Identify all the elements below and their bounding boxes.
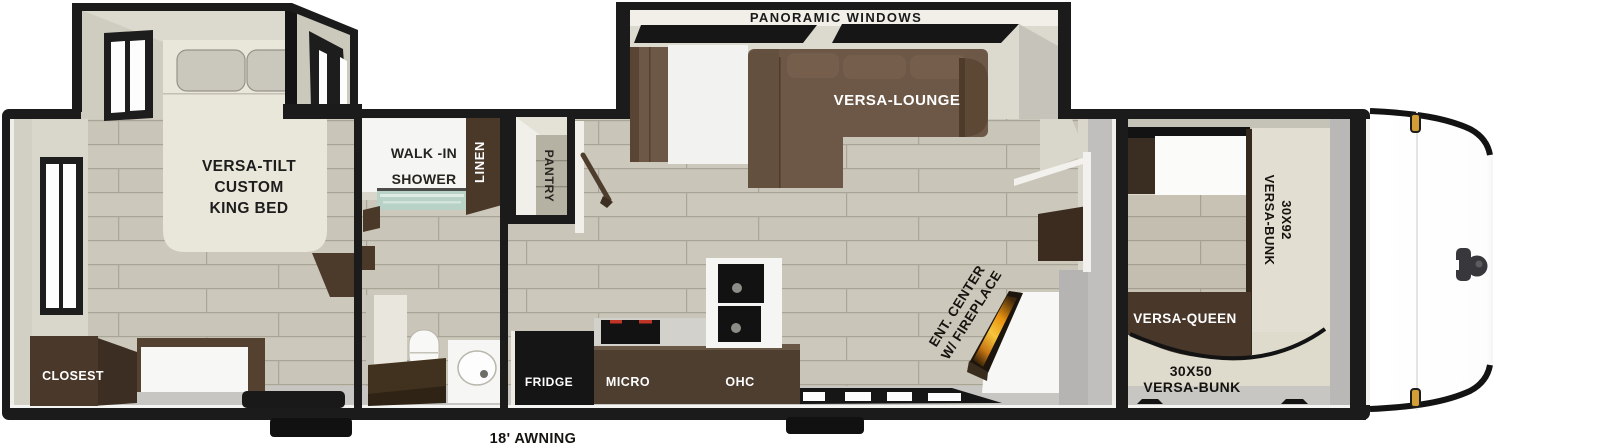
svg-text:CLOSEST: CLOSEST bbox=[42, 369, 104, 383]
svg-text:VERSA-BUNK: VERSA-BUNK bbox=[1143, 379, 1240, 395]
svg-text:MICRO: MICRO bbox=[606, 375, 650, 389]
svg-text:30X50: 30X50 bbox=[1170, 363, 1212, 379]
svg-text:30X92: 30X92 bbox=[1279, 200, 1294, 240]
svg-text:VERSA-BUNK: VERSA-BUNK bbox=[1262, 175, 1277, 266]
svg-text:VERSA-QUEEN: VERSA-QUEEN bbox=[1133, 311, 1236, 326]
svg-text:VERSA-TILT: VERSA-TILT bbox=[202, 158, 296, 175]
svg-text:SHOWER: SHOWER bbox=[392, 171, 457, 187]
svg-text:PANTRY: PANTRY bbox=[542, 150, 556, 203]
svg-text:LINEN: LINEN bbox=[472, 141, 487, 183]
svg-text:WALK -IN: WALK -IN bbox=[391, 145, 457, 161]
svg-text:VERSA-LOUNGE: VERSA-LOUNGE bbox=[834, 92, 961, 109]
svg-text:18' AWNING: 18' AWNING bbox=[490, 431, 577, 445]
svg-text:FRIDGE: FRIDGE bbox=[525, 375, 573, 389]
svg-text:OHC: OHC bbox=[725, 375, 754, 389]
svg-text:CUSTOM: CUSTOM bbox=[214, 179, 283, 196]
svg-text:KING BED: KING BED bbox=[210, 200, 289, 217]
svg-text:PANORAMIC WINDOWS: PANORAMIC WINDOWS bbox=[750, 10, 922, 25]
